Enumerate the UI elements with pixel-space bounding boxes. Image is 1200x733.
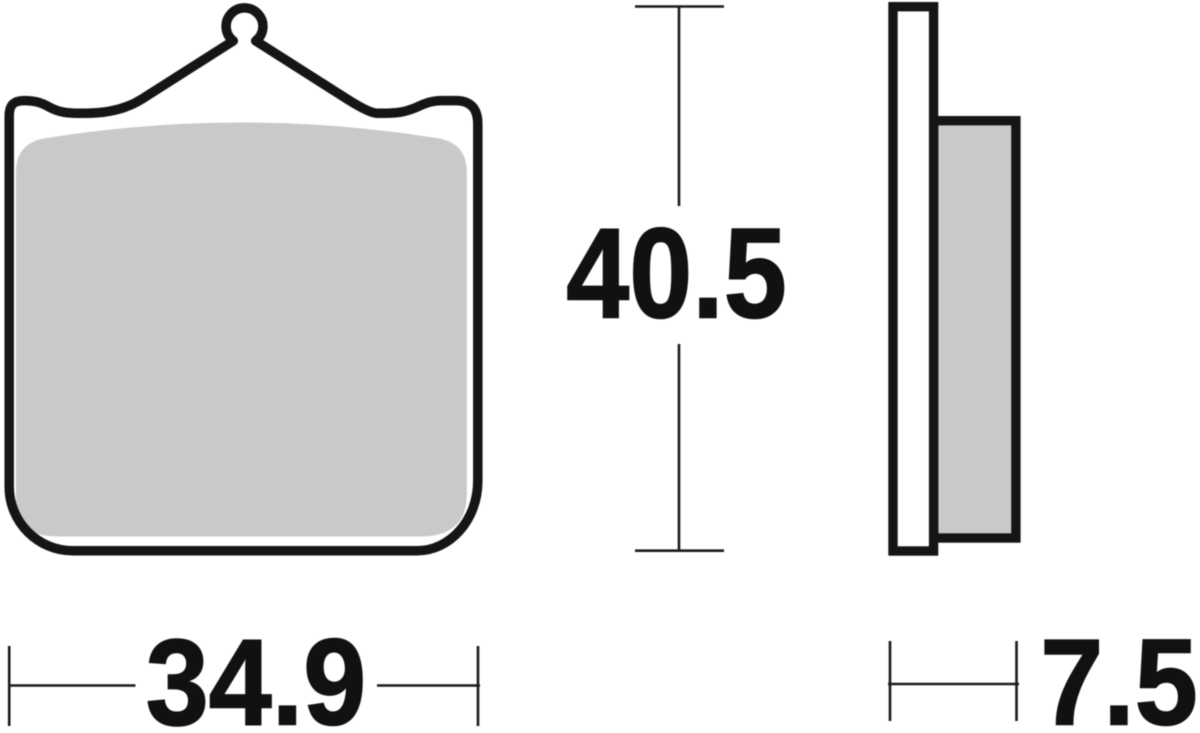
svg-text:34.9: 34.9 xyxy=(146,614,366,733)
svg-text:7.5: 7.5 xyxy=(1040,614,1197,733)
svg-text:40.5: 40.5 xyxy=(566,202,786,345)
